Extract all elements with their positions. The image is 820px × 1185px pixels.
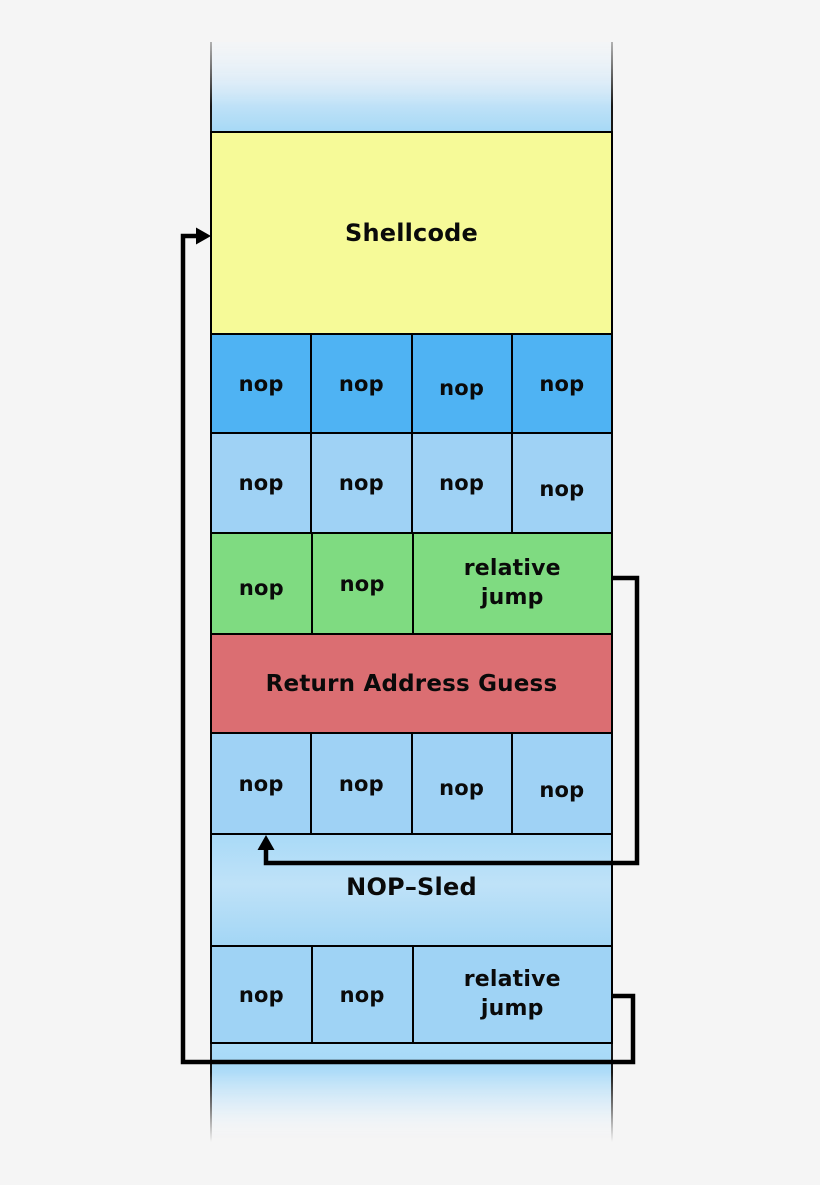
nop-cell: nop bbox=[511, 335, 611, 432]
arrowhead-right-icon bbox=[196, 228, 211, 245]
nop-label: nop bbox=[339, 772, 384, 796]
memory-top-gradient bbox=[210, 42, 613, 131]
nop-label: nop bbox=[539, 372, 584, 396]
nop-sled-label: NOP–Sled bbox=[346, 873, 477, 901]
nop-label: nop bbox=[239, 471, 284, 495]
memory-bottom-gradient bbox=[210, 1044, 613, 1146]
nop-cell: nop bbox=[311, 947, 412, 1042]
nop-label: nop bbox=[239, 372, 284, 396]
relative-jump-label: relative jump bbox=[464, 966, 561, 1023]
nop-label: nop bbox=[439, 376, 484, 400]
nop-sled-block: NOP–Sled bbox=[212, 833, 611, 945]
green-jump-row: nop nop relative jump bbox=[212, 532, 611, 633]
nop-cell: nop bbox=[212, 534, 311, 633]
nop-row-3: nop nop nop nop bbox=[212, 732, 611, 833]
nop-label: nop bbox=[339, 471, 384, 495]
shellcode-label: Shellcode bbox=[345, 219, 478, 247]
relative-jump-cell: relative jump bbox=[412, 947, 612, 1042]
nop-cell: nop bbox=[310, 734, 410, 833]
nop-cell: nop bbox=[212, 734, 310, 833]
nop-row-2: nop nop nop nop bbox=[212, 432, 611, 532]
nop-label: nop bbox=[439, 471, 484, 495]
nop-cell: nop bbox=[212, 434, 310, 532]
nop-label: nop bbox=[439, 776, 484, 800]
nop-cell: nop bbox=[310, 335, 410, 432]
nop-label: nop bbox=[339, 372, 384, 396]
relative-jump-cell: relative jump bbox=[412, 534, 612, 633]
nop-label: nop bbox=[340, 983, 385, 1007]
nop-cell: nop bbox=[212, 335, 310, 432]
nop-label: nop bbox=[340, 572, 385, 596]
nop-cell: nop bbox=[411, 335, 511, 432]
nop-row-1: nop nop nop nop bbox=[212, 333, 611, 432]
exploit-stack-diagram: Shellcode nop nop nop nop nop nop nop bbox=[0, 0, 820, 1185]
nop-cell: nop bbox=[511, 434, 611, 532]
nop-label: nop bbox=[539, 778, 584, 802]
nop-label: nop bbox=[239, 772, 284, 796]
nop-cell: nop bbox=[310, 434, 410, 532]
nop-cell: nop bbox=[212, 947, 311, 1042]
relative-jump-label: relative jump bbox=[464, 555, 561, 612]
nop-label: nop bbox=[239, 983, 284, 1007]
bottom-jump-row: nop nop relative jump bbox=[212, 945, 611, 1042]
stack-blocks: Shellcode nop nop nop nop nop nop nop bbox=[210, 131, 613, 1044]
nop-cell: nop bbox=[511, 734, 611, 833]
nop-label: nop bbox=[539, 477, 584, 501]
nop-cell: nop bbox=[311, 534, 412, 633]
return-address-guess-block: Return Address Guess bbox=[212, 633, 611, 732]
nop-cell: nop bbox=[411, 734, 511, 833]
return-address-guess-label: Return Address Guess bbox=[266, 671, 558, 697]
nop-cell: nop bbox=[411, 434, 511, 532]
shellcode-block: Shellcode bbox=[212, 133, 611, 333]
nop-label: nop bbox=[239, 576, 284, 600]
